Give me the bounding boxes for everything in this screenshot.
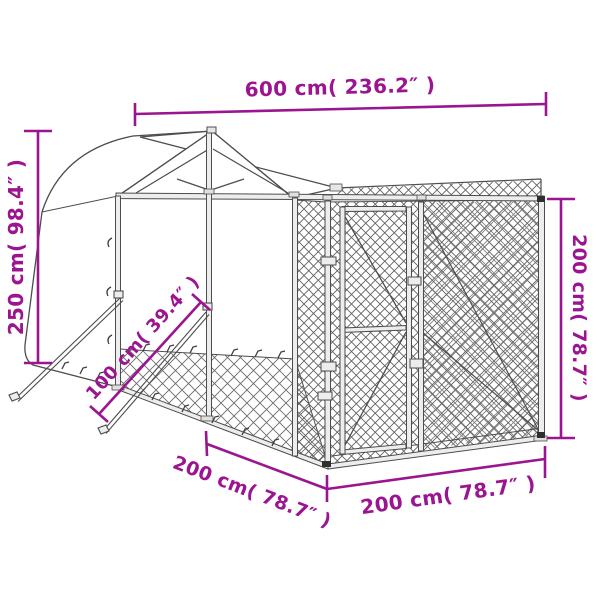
apex-cap bbox=[207, 127, 216, 133]
door-top-rail bbox=[342, 207, 406, 212]
latch-lower bbox=[410, 359, 423, 368]
mesh-right-overlap bbox=[423, 201, 539, 449]
bracket-right-bottom bbox=[537, 432, 545, 438]
bracket-front-corner bbox=[322, 461, 331, 467]
door-stile-left bbox=[340, 207, 345, 454]
hinge-post bbox=[325, 201, 331, 466]
king-post bbox=[207, 133, 212, 419]
hinge-bottom bbox=[318, 392, 332, 400]
dim-label-length: 600 cm( 236.2″ ) bbox=[244, 73, 435, 102]
hinge-upper bbox=[321, 257, 336, 265]
mesh-strip bbox=[295, 200, 326, 465]
dim-label-height-right: 200 cm( 78.7″ ) bbox=[568, 234, 590, 402]
door-stile-right bbox=[407, 207, 412, 448]
latch-post bbox=[419, 202, 424, 451]
hinge-lower bbox=[321, 362, 336, 371]
latch-upper bbox=[408, 277, 421, 285]
dim-label-height-left: 250 cm( 98.4″ ) bbox=[4, 159, 28, 335]
post-right-corner bbox=[539, 199, 545, 439]
dimension-diagram: 600 cm( 236.2″ ) 250 cm( 98.4″ ) 200 cm(… bbox=[0, 0, 600, 600]
tarp-canopy bbox=[25, 131, 337, 387]
bracket-right-top bbox=[537, 196, 545, 202]
post-mid bbox=[293, 198, 298, 456]
